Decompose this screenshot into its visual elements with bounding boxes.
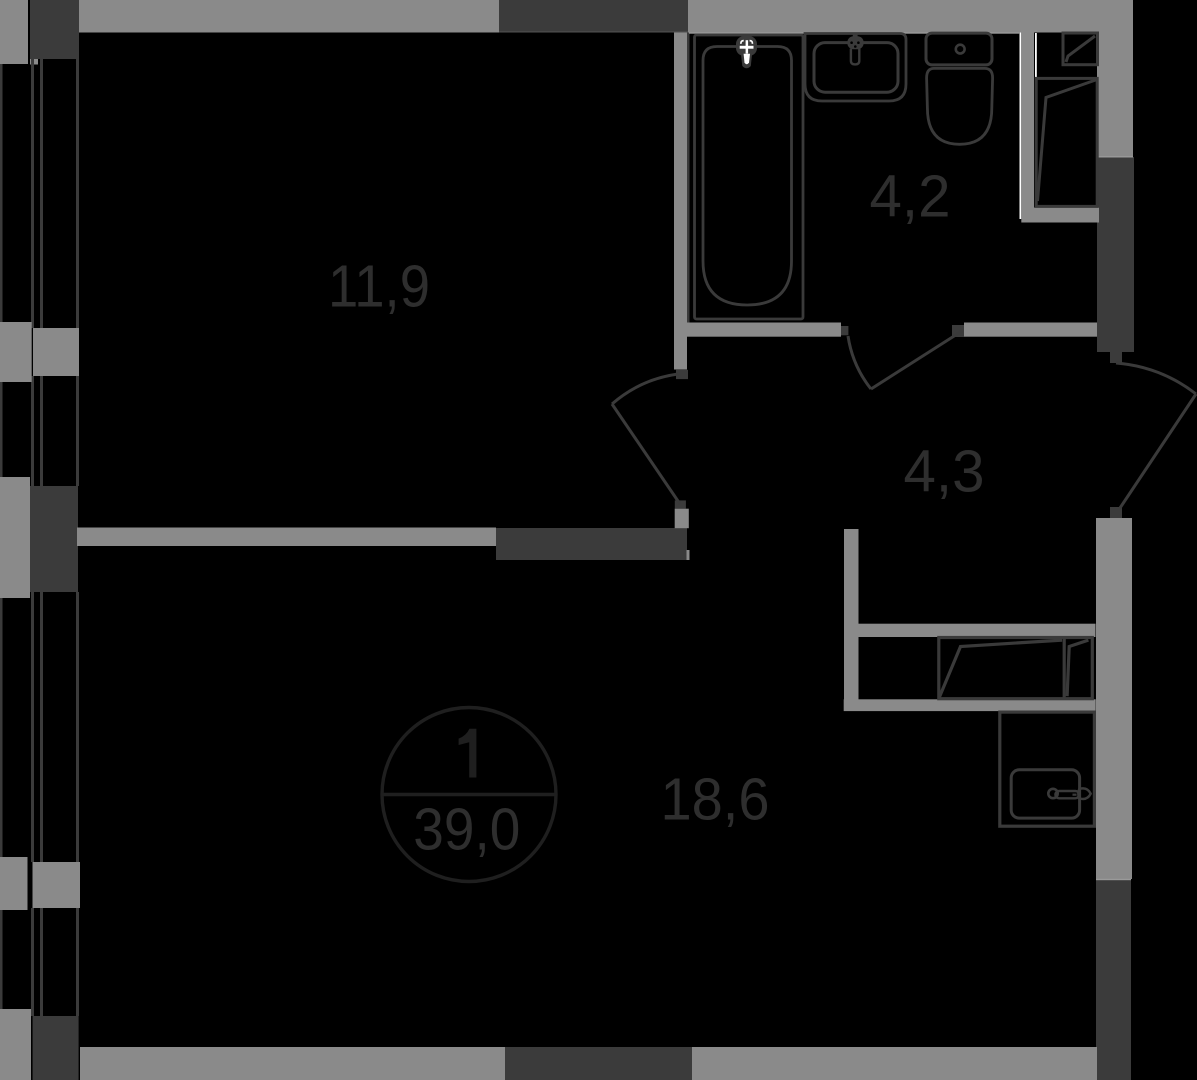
- svg-text:18,6: 18,6: [661, 766, 770, 832]
- svg-text:11,9: 11,9: [328, 254, 430, 320]
- svg-text:4,2: 4,2: [870, 163, 951, 229]
- svg-text:4,3: 4,3: [904, 439, 985, 505]
- svg-text:39,0: 39,0: [413, 797, 520, 863]
